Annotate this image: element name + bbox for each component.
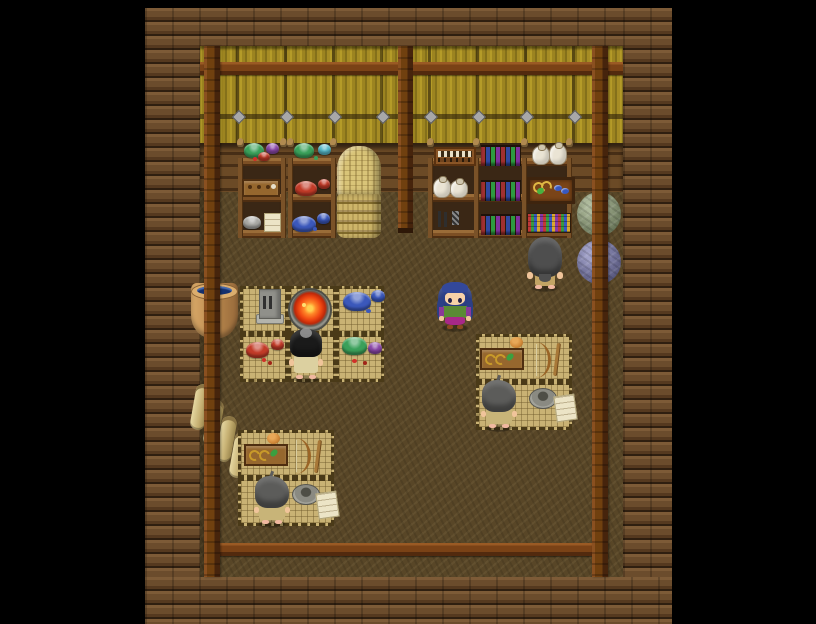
book-row (481, 180, 521, 201)
basket-stack-top (337, 146, 381, 196)
red-bead (268, 361, 272, 365)
hanging-tool (444, 212, 447, 227)
bowl-red-small (271, 339, 284, 350)
blue-bead (313, 227, 317, 231)
shelf-leg (331, 158, 336, 238)
bowl-violet-small (368, 342, 382, 354)
woven-band (452, 211, 459, 225)
display-case (527, 177, 575, 204)
bowl-red-large (246, 342, 269, 358)
abacus-holes (438, 158, 472, 162)
npc-hair-shaggy (255, 476, 289, 508)
shelf-leg (238, 158, 243, 238)
bowl-green-large (294, 143, 314, 158)
chisel (269, 296, 272, 309)
wall-panel-seam (428, 46, 431, 143)
wall-panel-seam (236, 46, 239, 143)
red-bead (262, 358, 266, 362)
bowl-red-small (258, 152, 270, 161)
north-log-wall (145, 8, 672, 46)
book-row (481, 145, 521, 166)
folded-paper (264, 213, 281, 232)
kiln-fire[interactable] (288, 288, 332, 332)
npc-hair-long-gray (528, 237, 562, 277)
clay-ball (510, 337, 523, 348)
shelf-knob (287, 138, 294, 147)
bowl-green-large (342, 337, 367, 355)
npc-hair-gray-patch (300, 328, 312, 338)
cloth-sack (433, 178, 451, 198)
pillar-center (398, 46, 413, 233)
book-row (481, 214, 521, 235)
npc-foot (309, 375, 316, 379)
shelf-leg (428, 158, 433, 238)
npc-hand (512, 411, 517, 417)
red-bead (363, 361, 367, 365)
blue-bead (561, 188, 569, 194)
clay-ball (267, 433, 280, 444)
game-viewport (0, 0, 816, 624)
bowl-blue-small (371, 290, 385, 302)
player-skirt (445, 317, 465, 325)
npc-spinner-east[interactable] (481, 378, 517, 430)
green-bead (314, 156, 318, 160)
npc-foot (489, 424, 496, 428)
hanging-tool (438, 211, 441, 227)
red-bead (253, 157, 257, 161)
npc-hand (289, 359, 294, 366)
npc-hand (318, 359, 323, 366)
basket-stack-rings (337, 194, 381, 238)
player-hand (439, 316, 444, 321)
player-shoe (447, 325, 453, 329)
player-bangs (442, 282, 468, 293)
npc-body (294, 355, 318, 373)
shelf-knob (280, 138, 287, 147)
wall-panel-seam (332, 46, 335, 143)
bowl-gray (243, 216, 261, 229)
bowl-teal-small (318, 144, 331, 155)
south-log-wall (145, 577, 672, 624)
wall-panel-seam (284, 46, 287, 143)
bowl-red-large (295, 181, 317, 196)
green-leaf (269, 448, 278, 458)
bead-abacus (434, 147, 476, 166)
npc-foot (275, 520, 282, 524)
tray-knob (248, 185, 252, 189)
shelf-knob (521, 138, 528, 147)
tray-knob (257, 185, 261, 189)
cloth-bolts (527, 213, 571, 233)
player-character[interactable] (437, 278, 473, 330)
tray-pearl (271, 184, 276, 189)
pattern-paper (315, 491, 339, 520)
npc-hand (254, 507, 259, 513)
npc-foot (296, 375, 303, 379)
wall-panel-seam (524, 46, 527, 143)
cloth-sack (450, 180, 468, 198)
player-eye (448, 298, 452, 303)
npc-hair-shaggy (482, 380, 516, 412)
shelf-knob (473, 138, 480, 147)
cloth-sack (549, 144, 567, 165)
shelf-board (288, 158, 336, 166)
green-leaf (505, 352, 514, 362)
npc-browser[interactable] (526, 236, 564, 290)
player-eye (458, 298, 462, 303)
stamp-tray (244, 444, 288, 466)
stamp-tray (242, 179, 280, 197)
npc-foot (548, 285, 555, 289)
npc-foot (262, 520, 269, 524)
player-sleeve (439, 307, 444, 316)
npc-hair-tip (539, 274, 551, 282)
pattern-paper (553, 394, 577, 423)
npc-crafter[interactable] (288, 327, 324, 381)
shelf-knob (330, 138, 337, 147)
stamp-tray (480, 348, 524, 370)
shelf-knob (566, 138, 573, 147)
cloth-sack (532, 146, 550, 165)
east-log-wall (623, 8, 672, 624)
abacus-beads (438, 151, 472, 157)
shelf-knob (427, 138, 434, 147)
pillar-west (204, 46, 220, 577)
shelf-knob (237, 138, 244, 147)
player-sleeve (466, 307, 471, 316)
floor-rail (204, 543, 608, 556)
shelf-leg (281, 158, 286, 238)
player-hand (466, 316, 471, 321)
bowl-red-small (318, 179, 330, 189)
bowl-blue-small (317, 213, 330, 224)
sprite-shadow (441, 324, 469, 332)
wall-panel-seam (380, 46, 383, 143)
basket-stack (337, 146, 381, 238)
npc-foot (535, 285, 542, 289)
wall-panel-seam (572, 46, 575, 143)
player-shoe (457, 325, 463, 329)
green-thread (536, 187, 545, 195)
npc-hand (481, 411, 486, 417)
npc-foot (502, 424, 509, 428)
red-bead (352, 359, 357, 363)
chisel (263, 296, 266, 309)
npc-spinner-south[interactable] (254, 474, 290, 526)
blue-bead (366, 309, 371, 313)
npc-hand (557, 272, 563, 279)
npc-hand (285, 507, 290, 513)
shelf-leg (474, 158, 479, 238)
tool-rack (436, 211, 470, 231)
wall-panel-seam (476, 46, 479, 143)
shelf-board (288, 230, 336, 238)
tray-knob (266, 185, 270, 189)
pillar-east (592, 46, 608, 577)
